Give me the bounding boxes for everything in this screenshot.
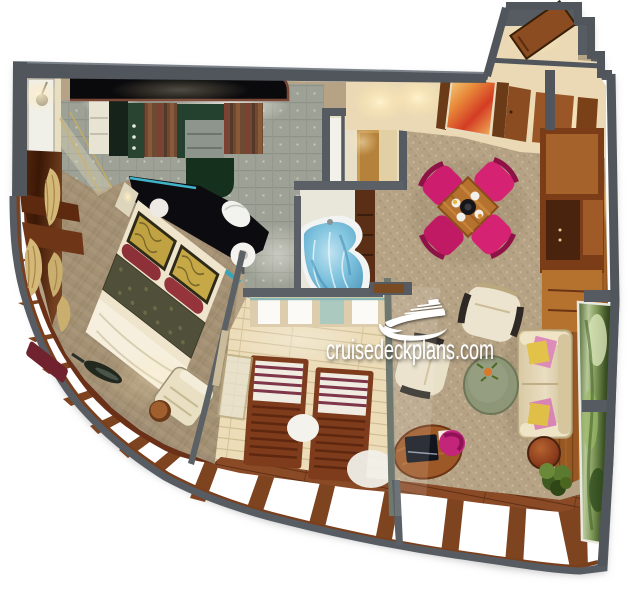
- svg-text:cruisedeckplans.com: cruisedeckplans.com: [326, 334, 494, 365]
